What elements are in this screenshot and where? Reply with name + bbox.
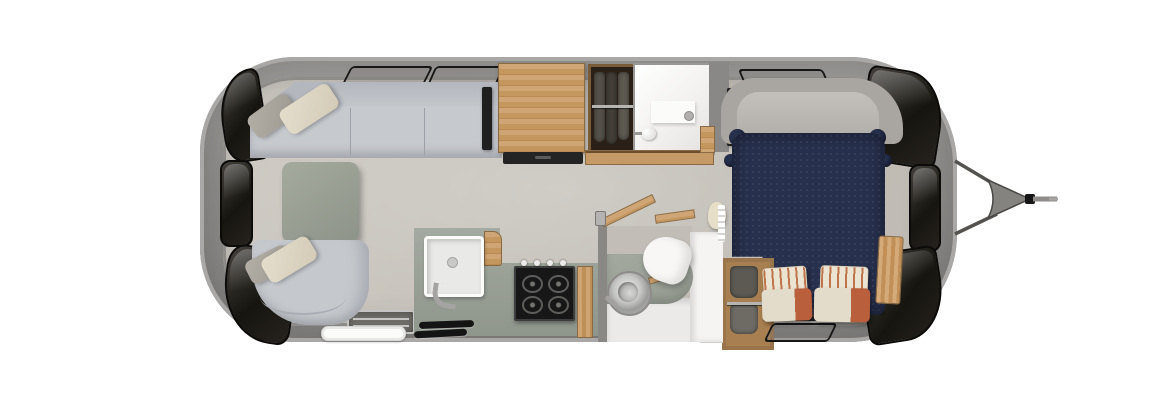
wardrobe-closet bbox=[588, 64, 637, 157]
cooktop-knob bbox=[521, 260, 527, 266]
burner bbox=[522, 296, 543, 314]
shower-head bbox=[641, 127, 656, 140]
cooktop-knob bbox=[560, 260, 566, 266]
burner bbox=[548, 296, 569, 314]
folded-garment bbox=[730, 266, 758, 298]
bed-pillow bbox=[814, 288, 871, 323]
shower-drain bbox=[684, 111, 694, 121]
clothes-rod bbox=[592, 105, 633, 108]
kitchen-wood-cabinet bbox=[577, 266, 593, 338]
bed-pillow bbox=[761, 288, 812, 322]
hanging-garment bbox=[606, 72, 617, 144]
tow-hitch bbox=[945, 148, 1065, 258]
cooktop-knob bbox=[547, 260, 553, 266]
nightstand bbox=[875, 235, 904, 304]
appliance-vent-drawer bbox=[503, 152, 583, 164]
headboard bbox=[737, 92, 879, 140]
hitch-coupler bbox=[988, 180, 1030, 218]
gas-cooktop bbox=[514, 266, 575, 321]
sofa-seam bbox=[350, 108, 351, 156]
hitch-tongue-tip bbox=[1049, 198, 1058, 201]
sill-counter bbox=[585, 150, 714, 165]
trailer-floorplan bbox=[0, 0, 1170, 408]
entry-step bbox=[321, 326, 406, 341]
tv-panel-lounge bbox=[482, 87, 492, 150]
dinette-table bbox=[282, 162, 359, 243]
window-front-middle bbox=[909, 164, 941, 252]
window-rear-middle bbox=[220, 160, 253, 247]
sofa-seam bbox=[424, 108, 425, 156]
door-hinge bbox=[595, 211, 606, 226]
cooktop-knob bbox=[534, 260, 540, 266]
burner bbox=[548, 275, 569, 293]
vessel-sink bbox=[607, 271, 652, 316]
counter-wood-trim bbox=[484, 231, 502, 266]
burner bbox=[522, 275, 543, 293]
bathroom-wall bbox=[598, 226, 607, 342]
refrigerator-counter bbox=[498, 63, 585, 153]
accordion-door bbox=[718, 205, 725, 242]
folded-garment bbox=[730, 304, 758, 334]
roof-vent-outline-4 bbox=[763, 323, 837, 342]
corner-shelf bbox=[700, 126, 715, 153]
bathroom-wall-white bbox=[690, 232, 723, 342]
step-rung bbox=[353, 318, 409, 320]
